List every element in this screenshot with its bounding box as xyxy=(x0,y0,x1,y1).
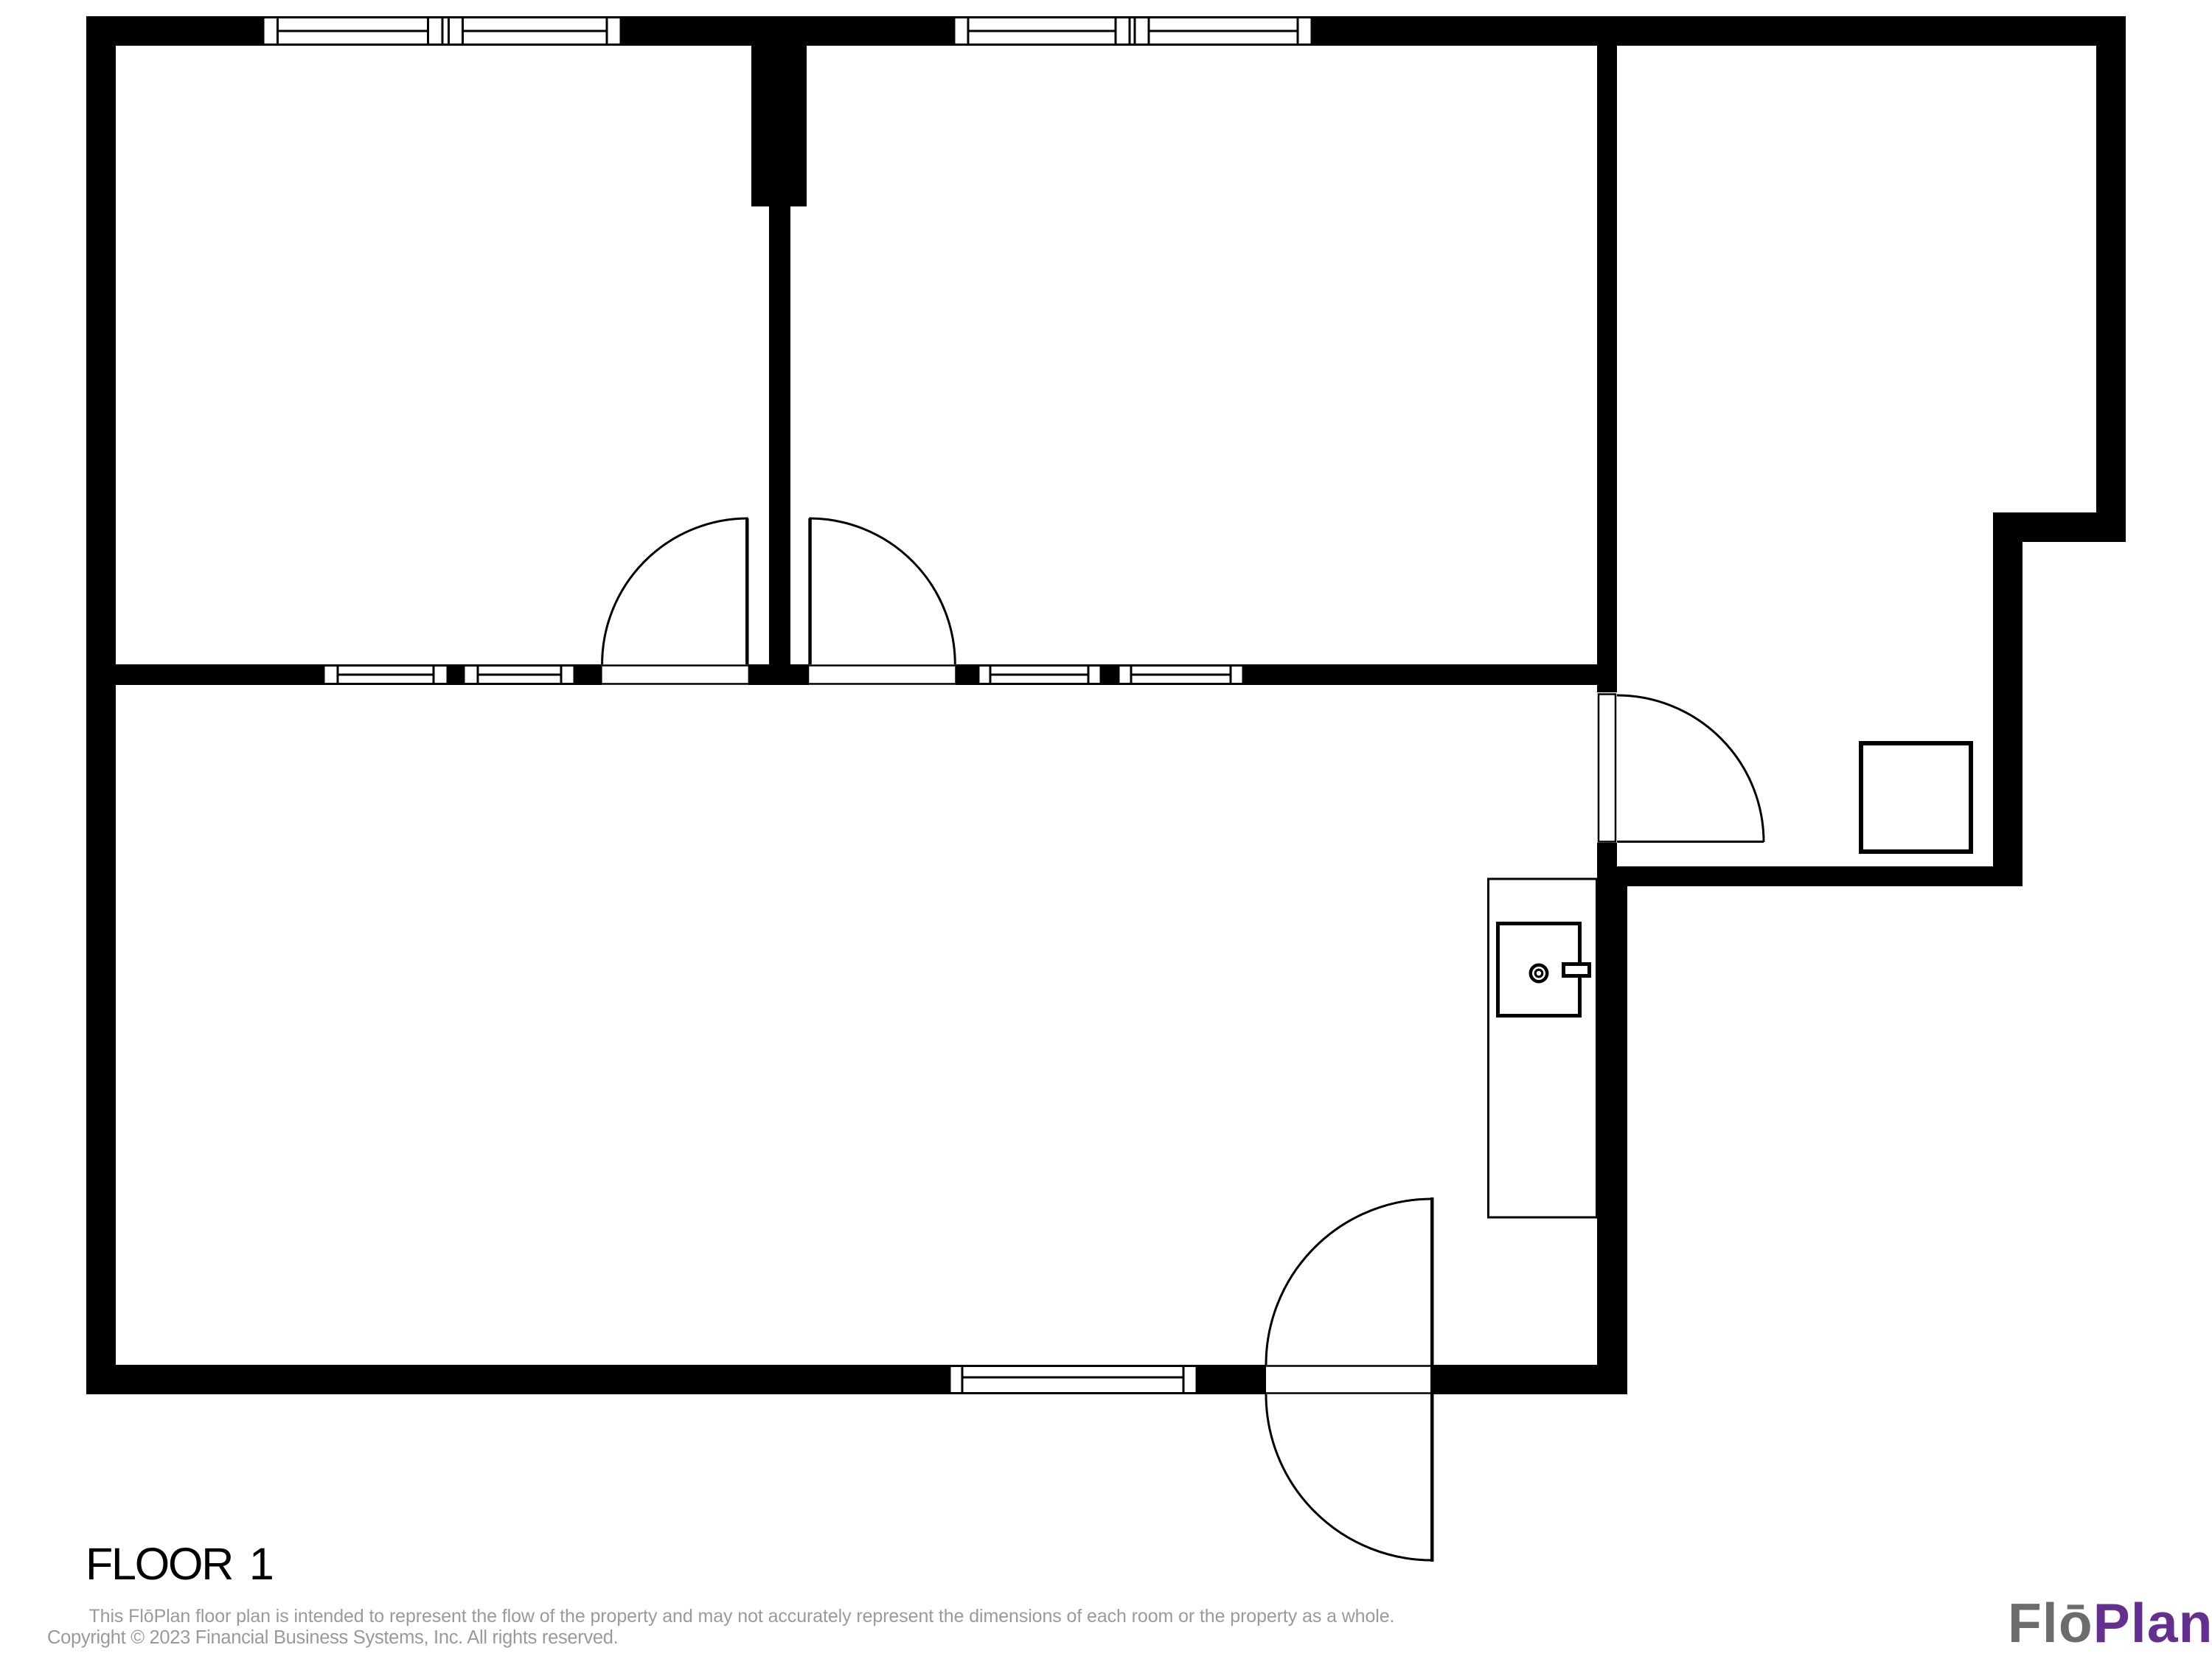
svg-text:FLOOR 1: FLOOR 1 xyxy=(86,1539,273,1589)
svg-text:FlōPlan: FlōPlan xyxy=(2008,1592,2212,1654)
svg-text:This FlōPlan floor plan is int: This FlōPlan floor plan is intended to r… xyxy=(89,1606,1395,1627)
svg-text:Copyright © 2023 Financial Bus: Copyright © 2023 Financial Business Syst… xyxy=(47,1627,618,1648)
